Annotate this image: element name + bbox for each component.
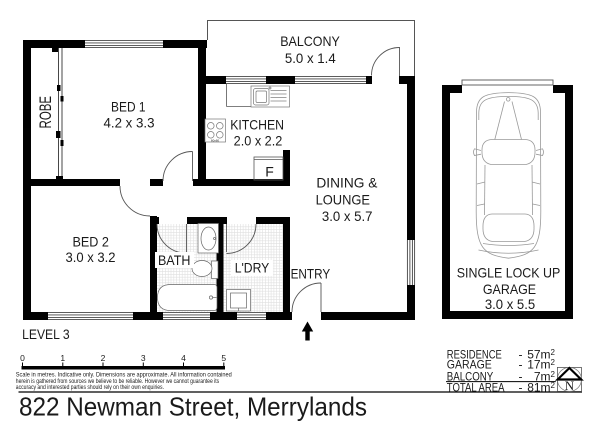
svg-text:-: - <box>519 380 523 394</box>
svg-text:5: 5 <box>221 353 226 363</box>
svg-text:SINGLE LOCK UP: SINGLE LOCK UP <box>457 265 561 280</box>
svg-text:TOTAL AREA: TOTAL AREA <box>447 380 505 394</box>
svg-text:5.0 x 1.4: 5.0 x 1.4 <box>285 51 336 66</box>
svg-text:Scale in metres. Indicative on: Scale in metres. Indicative only. Dimens… <box>16 372 232 378</box>
svg-text:3.0 x 5.5: 3.0 x 5.5 <box>485 297 536 312</box>
svg-text:BED 2: BED 2 <box>72 235 109 250</box>
svg-text:ROBE: ROBE <box>36 96 55 129</box>
svg-text:4.2 x 3.3: 4.2 x 3.3 <box>104 116 155 131</box>
svg-text:3.0 x 5.7: 3.0 x 5.7 <box>322 209 373 224</box>
svg-text:KITCHEN: KITCHEN <box>230 117 284 132</box>
svg-text:L'DRY: L'DRY <box>235 261 270 276</box>
svg-text:F: F <box>265 164 274 180</box>
svg-text:accuracy and interested partie: accuracy and interested parties should r… <box>16 385 164 391</box>
svg-text:3.0 x 3.2: 3.0 x 3.2 <box>66 250 116 265</box>
svg-text:3: 3 <box>141 353 146 363</box>
svg-text:N: N <box>565 378 575 393</box>
svg-text:BATH: BATH <box>158 253 191 268</box>
svg-text:BALCONY: BALCONY <box>280 34 340 49</box>
svg-text:0: 0 <box>20 353 25 363</box>
svg-text:LEVEL 3: LEVEL 3 <box>22 327 70 342</box>
svg-text:GARAGE: GARAGE <box>483 282 536 297</box>
svg-text:2.0 x 2.2: 2.0 x 2.2 <box>234 134 283 149</box>
svg-text:60x60: 60x60 <box>211 139 220 143</box>
svg-text:2: 2 <box>101 353 106 363</box>
svg-text:ENTRY: ENTRY <box>291 267 331 282</box>
svg-text:4: 4 <box>181 353 186 363</box>
svg-text:822 Newman Street, Merrylands: 822 Newman Street, Merrylands <box>19 392 367 422</box>
svg-text:LOUNGE: LOUNGE <box>316 193 370 208</box>
svg-text:1: 1 <box>60 353 65 363</box>
svg-text:DINING &: DINING & <box>316 176 377 191</box>
svg-text:BED 1: BED 1 <box>111 100 146 115</box>
